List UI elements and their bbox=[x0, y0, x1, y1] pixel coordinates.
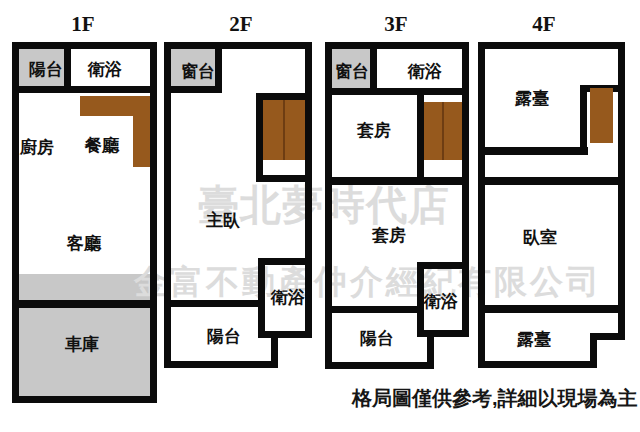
room-label-balcony-1f: 陽台 bbox=[29, 61, 63, 78]
floor-label-1f: 1F bbox=[63, 14, 103, 35]
room-label-bedroom: 臥室 bbox=[523, 229, 557, 246]
wall bbox=[478, 177, 625, 185]
wall bbox=[325, 177, 469, 185]
room-label-living: 客廳 bbox=[67, 235, 101, 252]
wall bbox=[12, 86, 157, 93]
wall bbox=[305, 42, 312, 338]
room-label-window-bay-3f: 窗台 bbox=[335, 63, 369, 80]
dining-counter bbox=[80, 96, 137, 116]
wall bbox=[478, 42, 625, 49]
room-label-master-bedroom: 主臥 bbox=[206, 212, 240, 229]
room-label-dining: 餐廳 bbox=[85, 137, 119, 154]
room-label-bath-1f: 衛浴 bbox=[88, 61, 122, 78]
wall bbox=[417, 262, 424, 337]
wall bbox=[258, 258, 265, 338]
room-label-window-bay-2f: 窗台 bbox=[181, 63, 215, 80]
wall bbox=[164, 361, 278, 368]
wall bbox=[325, 42, 469, 49]
wall bbox=[12, 396, 157, 403]
room-label-balcony-2f: 陽台 bbox=[207, 328, 241, 345]
wardrobe-door-divider bbox=[442, 102, 444, 160]
room-label-suite-lower: 套房 bbox=[372, 227, 406, 244]
wall bbox=[258, 331, 312, 338]
room-label-suite-upper: 套房 bbox=[357, 122, 391, 139]
room-label-bath-upper-3f: 衛浴 bbox=[408, 63, 442, 80]
wall bbox=[64, 42, 71, 93]
room-label-terrace-upper: 露臺 bbox=[515, 90, 549, 107]
wall bbox=[150, 42, 157, 403]
wall bbox=[12, 42, 157, 49]
wall bbox=[462, 42, 469, 337]
wall bbox=[258, 258, 312, 265]
wall bbox=[478, 305, 625, 313]
room-label-garage: 車庫 bbox=[65, 336, 99, 353]
cabinet-4f bbox=[590, 88, 613, 143]
wall bbox=[164, 300, 265, 307]
wall bbox=[12, 300, 157, 308]
floor-label-3f: 3F bbox=[376, 14, 416, 35]
wall bbox=[417, 95, 424, 185]
wall bbox=[325, 88, 469, 95]
wall bbox=[478, 147, 588, 155]
wall bbox=[417, 330, 469, 337]
dining-counter bbox=[133, 96, 150, 167]
wall bbox=[478, 361, 597, 368]
room-label-bath-2f: 衛浴 bbox=[271, 289, 305, 306]
wall bbox=[325, 306, 424, 313]
room-label-terrace-lower: 露臺 bbox=[517, 331, 551, 348]
wall bbox=[478, 42, 485, 368]
wall bbox=[580, 85, 587, 155]
watermark-company-name: 金富不動產仲介經紀有限公司 bbox=[134, 266, 602, 299]
disclaimer-text: 格局圖僅供參考,詳細以現場為主 bbox=[352, 387, 638, 409]
wall bbox=[12, 42, 19, 403]
floor-label-2f: 2F bbox=[221, 14, 261, 35]
floor-label-4f: 4F bbox=[524, 14, 564, 35]
wall bbox=[164, 86, 222, 93]
wall bbox=[256, 93, 263, 182]
wall bbox=[417, 262, 469, 269]
wall bbox=[256, 93, 312, 100]
floor-plan-canvas: 臺北夢時代店 金富不動產仲介經紀有限公司 1F 2F 3F 4F 陽台 衛浴 廚… bbox=[0, 0, 640, 432]
wall bbox=[256, 175, 312, 182]
wall bbox=[164, 42, 312, 49]
room-label-bath-lower-3f: 衛浴 bbox=[424, 293, 458, 310]
wall bbox=[325, 362, 434, 369]
driveway-strip-1f bbox=[19, 274, 150, 300]
room-label-kitchen: 廚房 bbox=[20, 139, 54, 156]
room-label-balcony-3f: 陽台 bbox=[360, 330, 394, 347]
wardrobe-door-divider bbox=[283, 100, 285, 160]
